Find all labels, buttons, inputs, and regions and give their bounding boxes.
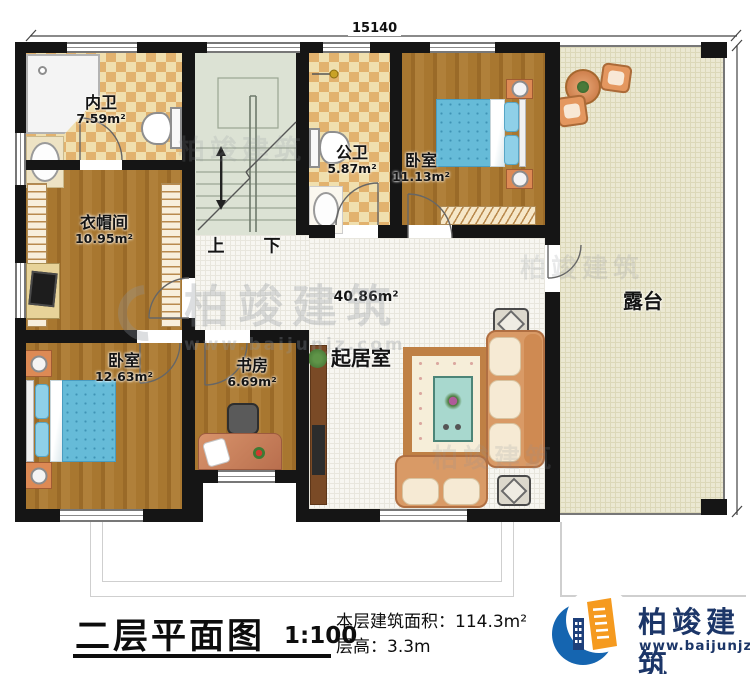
room-area: 12.63m²	[95, 370, 153, 384]
nightstand	[25, 350, 52, 377]
wall	[309, 225, 335, 238]
nightstand	[506, 79, 533, 99]
window	[15, 133, 26, 185]
wall	[545, 292, 560, 522]
sofa-cushion	[489, 337, 521, 376]
floor-height-label: 层高：	[336, 637, 387, 657]
window	[15, 263, 26, 318]
table-cup	[443, 424, 449, 430]
desk-chair	[227, 403, 259, 435]
eave-line-right-v	[560, 522, 562, 596]
wall	[15, 330, 137, 343]
lamp-icon	[501, 477, 528, 504]
room-name: 公卫	[327, 144, 376, 162]
terrace-column	[701, 499, 727, 515]
table-flowers	[444, 392, 462, 410]
eave-outline-inner	[102, 522, 502, 582]
company-logo-url: www.baijunjz.com	[639, 638, 750, 654]
bed-top-headboard	[519, 99, 526, 167]
nightstand	[25, 462, 52, 489]
window	[67, 42, 137, 53]
bed-top-pillow	[504, 135, 519, 165]
floor-stairwell	[195, 52, 296, 235]
room-name: 书房	[227, 357, 276, 375]
window	[380, 509, 467, 522]
dimension-right: 11870	[746, 263, 750, 316]
bed-left-pillow	[35, 384, 49, 419]
bed-left-pillow	[35, 422, 49, 457]
floor-height-value: 3.3m	[387, 637, 431, 657]
wall	[378, 225, 408, 238]
floor-area-line: 本层建筑面积：114.3m²	[336, 607, 527, 632]
room-label-living: 起居室	[331, 347, 391, 369]
wall	[182, 318, 195, 522]
wall	[195, 330, 205, 343]
tv-screen	[312, 425, 325, 475]
room-label-bedroom-top: 卧室 11.13m²	[392, 152, 450, 184]
terrace-column	[701, 42, 727, 58]
dimension-top: 15140	[348, 21, 401, 36]
room-area: 6.69m²	[227, 375, 276, 389]
terrace-chair	[599, 62, 633, 94]
bed-left	[62, 380, 116, 462]
room-area: 7.59m²	[76, 112, 125, 126]
window	[60, 509, 143, 522]
room-label-study: 书房 6.69m²	[227, 357, 276, 389]
stairs-up-label: 上	[208, 237, 225, 256]
tv-icon	[28, 271, 57, 308]
bed-left-headboard	[26, 380, 34, 462]
window	[430, 42, 495, 53]
floor-height-line: 层高：3.3m	[336, 632, 431, 657]
room-name: 卧室	[95, 352, 153, 370]
wall	[250, 330, 309, 343]
desk-flower	[253, 447, 265, 459]
room-area: 10.95m²	[75, 232, 133, 246]
room-name: 卧室	[392, 152, 450, 170]
sofa-cushion	[402, 478, 439, 505]
stairs-down-label: 下	[264, 237, 281, 256]
shower-head-icon	[38, 66, 47, 75]
sofa-cushion	[489, 380, 521, 419]
wall	[296, 330, 309, 522]
sofa-cushion	[489, 423, 521, 462]
window	[207, 42, 300, 53]
room-label-neiwei: 内卫 7.59m²	[76, 94, 125, 126]
wall	[26, 160, 80, 170]
room-name: 衣帽间	[75, 214, 133, 232]
plant-icon	[308, 349, 327, 368]
chair-cushion	[607, 70, 625, 86]
clothes-rack-right	[161, 183, 181, 327]
room-name: 内卫	[76, 94, 125, 112]
terrace-plant-icon	[577, 81, 589, 93]
room-label-cloakroom: 衣帽间 10.95m²	[75, 214, 133, 246]
lamp-table	[497, 475, 531, 506]
room-label-terrace: 露台	[623, 290, 663, 312]
floor-area-label: 本层建筑面积：	[336, 612, 455, 632]
wardrobe-rack	[440, 206, 536, 225]
wall	[452, 225, 545, 238]
wall	[122, 160, 182, 170]
floor-plan: 15140 11870 内卫 7.59m² 公卫 5.87m² 卧室 11.13…	[0, 0, 750, 674]
plan-title: 二层平面图	[75, 608, 265, 659]
room-label-gongwei: 公卫 5.87m²	[327, 144, 376, 176]
sofa-cushion	[443, 478, 480, 505]
window	[218, 470, 275, 483]
room-label-bedroom-left: 卧室 12.63m²	[95, 352, 153, 384]
bed-top-sheet	[490, 99, 505, 167]
sofa-main-back	[524, 334, 542, 464]
company-logo-name: 柏竣建筑	[638, 599, 750, 674]
sink-public	[313, 192, 339, 228]
floor-area-value: 114.3m²	[455, 612, 527, 632]
company-logo-icon	[545, 592, 637, 668]
table-cup	[455, 424, 461, 430]
chair-cushion	[563, 103, 581, 119]
terrace-chair	[555, 94, 589, 128]
living-area-label: 40.86m²	[333, 290, 398, 306]
room-area: 5.87m²	[327, 162, 376, 176]
room-area: 11.13m²	[392, 170, 450, 184]
title-underline	[73, 654, 331, 658]
wall	[296, 52, 309, 235]
window	[323, 42, 370, 53]
wall	[182, 52, 195, 278]
wall	[545, 42, 560, 245]
wall	[390, 52, 402, 225]
bed-top-pillow	[504, 102, 519, 132]
nightstand	[506, 169, 533, 189]
toilet-bowl-inner	[141, 112, 172, 145]
